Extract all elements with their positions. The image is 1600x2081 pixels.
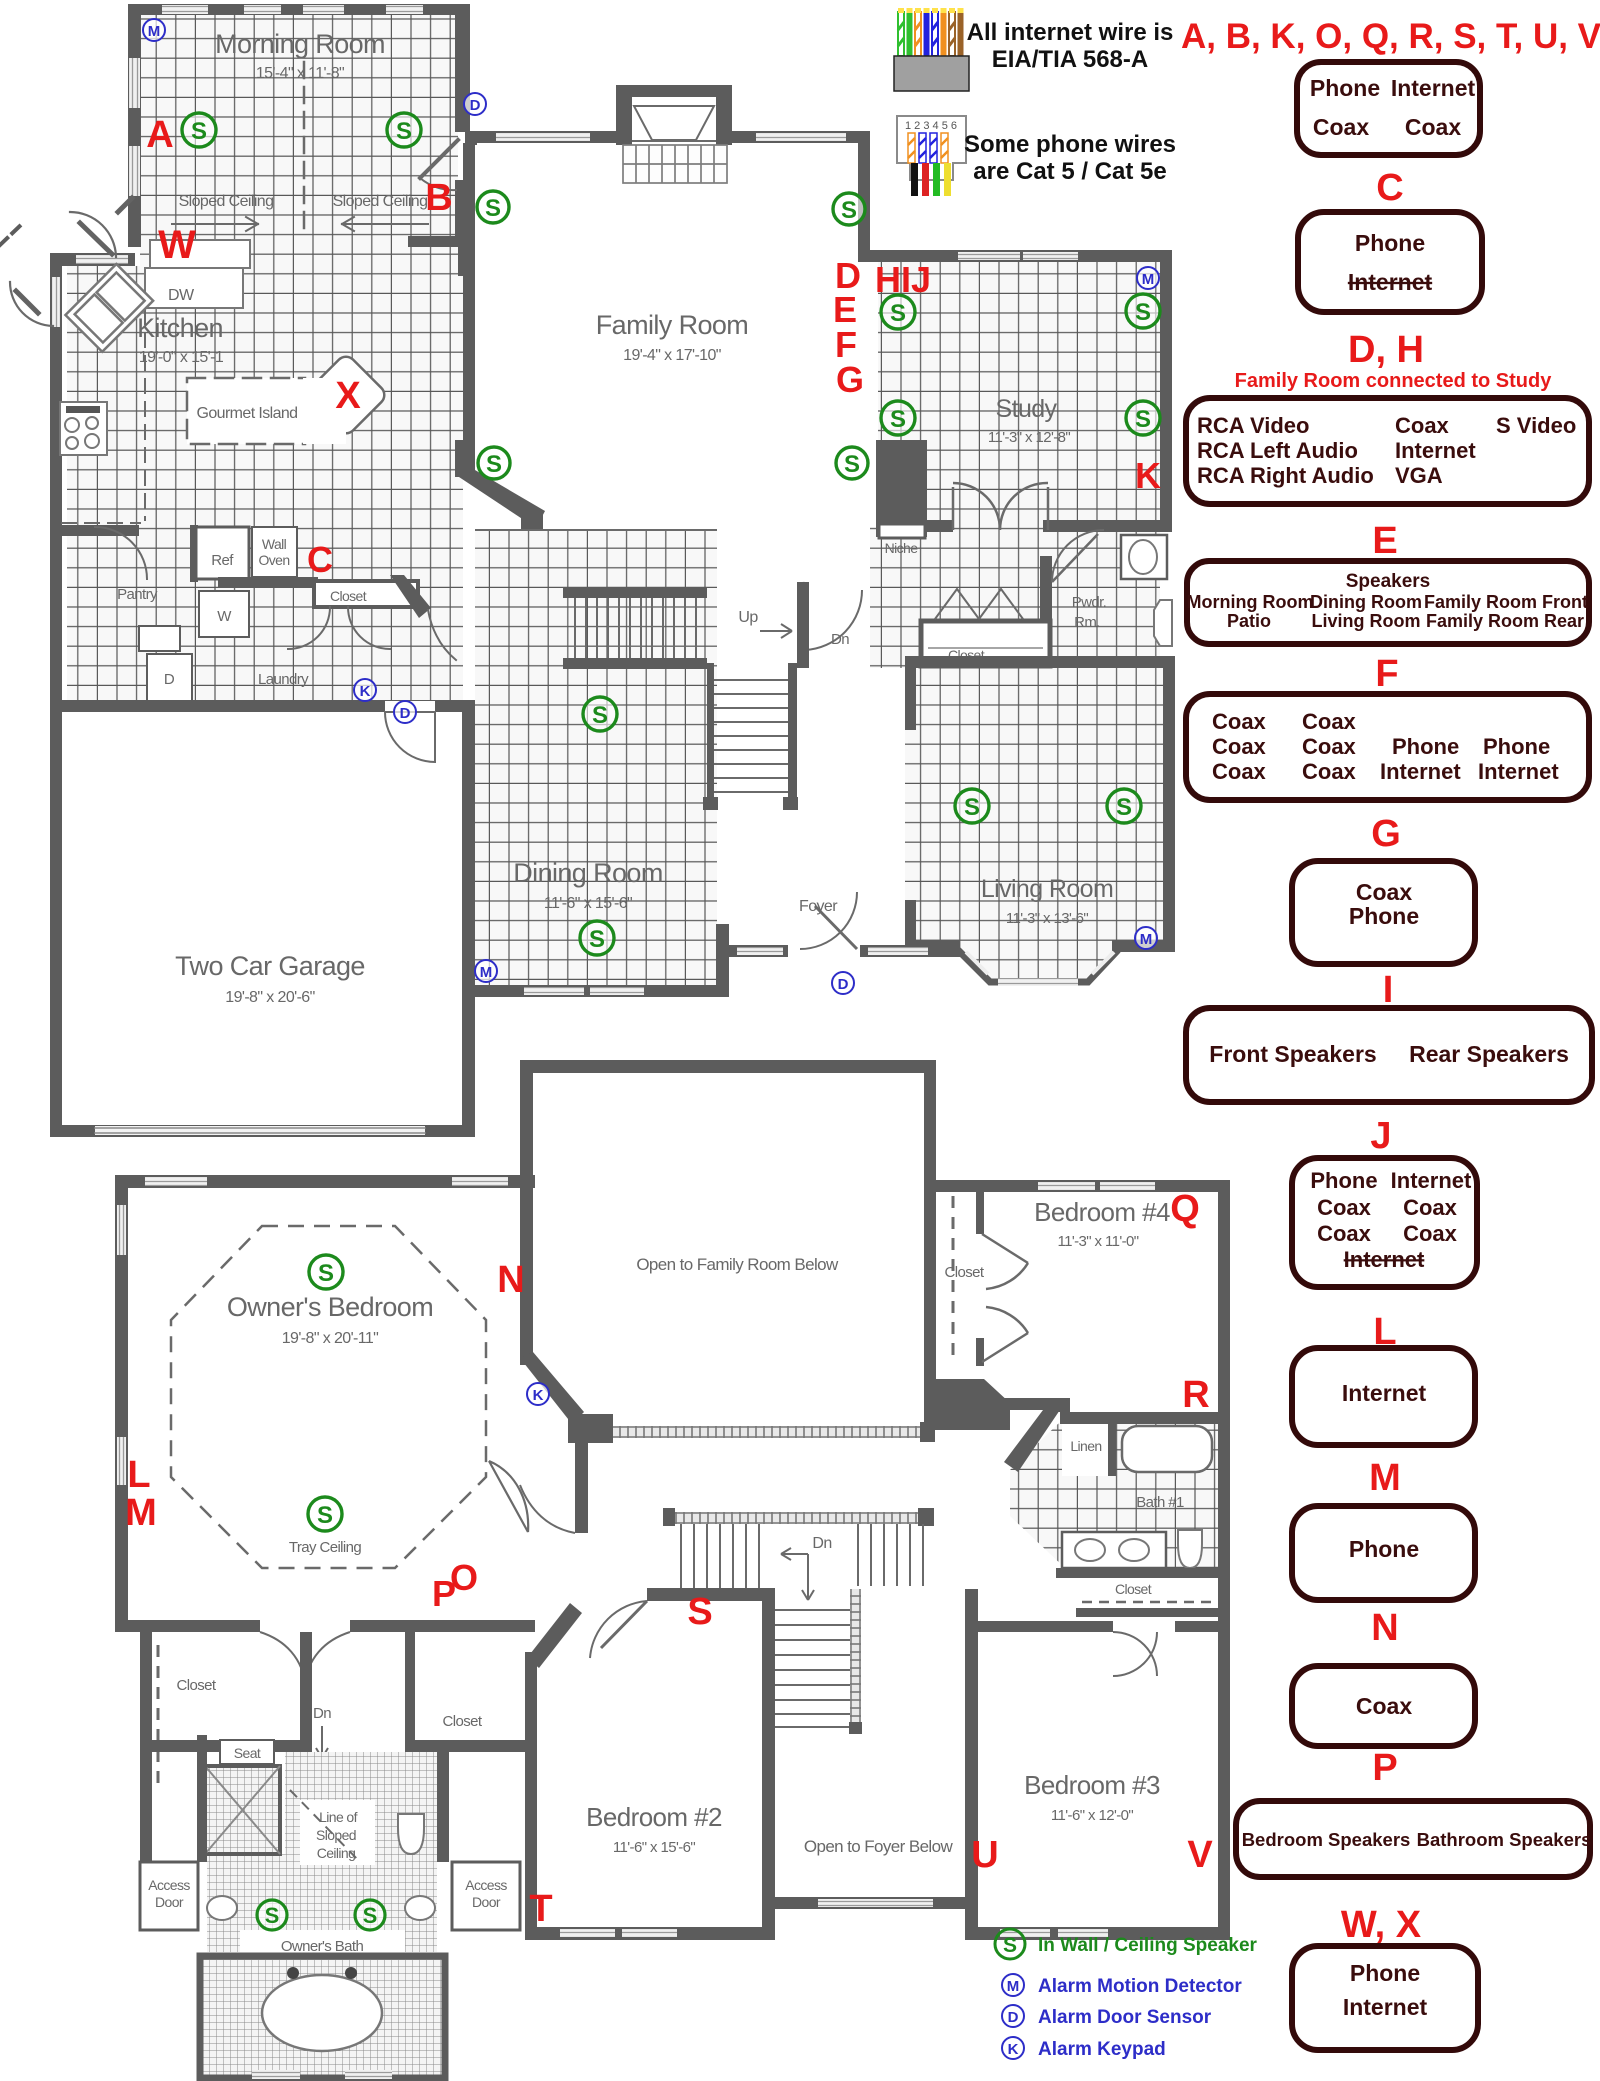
svg-text:S: S xyxy=(191,118,207,145)
svg-text:Phone: Phone xyxy=(1349,903,1419,929)
svg-text:19'-8" x 20'-11": 19'-8" x 20'-11" xyxy=(282,1330,379,1347)
svg-text:Dining Room: Dining Room xyxy=(513,858,662,888)
svg-text:Tray Ceiling: Tray Ceiling xyxy=(289,1539,362,1556)
svg-text:Ref: Ref xyxy=(211,552,234,569)
svg-text:Coax: Coax xyxy=(1313,114,1369,140)
svg-text:Rear Speakers: Rear Speakers xyxy=(1409,1041,1569,1067)
svg-text:M: M xyxy=(148,23,161,40)
svg-text:Pantry: Pantry xyxy=(117,586,158,603)
svg-text:Alarm Motion Detector: Alarm Motion Detector xyxy=(1038,1976,1242,1997)
svg-text:M: M xyxy=(1140,931,1153,948)
svg-text:Phone: Phone xyxy=(1310,75,1380,101)
svg-text:Coax: Coax xyxy=(1302,709,1357,734)
svg-text:S: S xyxy=(1135,406,1151,433)
svg-text:Phone: Phone xyxy=(1350,1960,1420,1986)
svg-text:S: S xyxy=(841,197,857,224)
svg-text:Coax: Coax xyxy=(1317,1221,1372,1246)
svg-text:Coax: Coax xyxy=(1302,759,1357,784)
svg-text:Patio: Patio xyxy=(1227,611,1271,631)
svg-text:EIA/TIA 568-A: EIA/TIA 568-A xyxy=(992,46,1148,73)
svg-text:U: U xyxy=(971,1834,998,1876)
svg-text:D: D xyxy=(470,97,481,114)
svg-text:Internet: Internet xyxy=(1478,759,1559,784)
svg-text:Internet: Internet xyxy=(1342,1380,1427,1406)
svg-text:1 2 3 4 5 6: 1 2 3 4 5 6 xyxy=(905,120,957,132)
svg-text:Kitchen: Kitchen xyxy=(137,313,223,343)
svg-text:K: K xyxy=(533,1387,544,1404)
svg-text:W: W xyxy=(217,608,232,625)
svg-text:Internet: Internet xyxy=(1395,438,1476,463)
svg-text:Alarm Keypad: Alarm Keypad xyxy=(1038,2039,1166,2060)
svg-text:Internet: Internet xyxy=(1380,759,1461,784)
svg-text:S: S xyxy=(890,300,906,327)
svg-text:Dn: Dn xyxy=(831,631,849,648)
svg-text:Pwdr.: Pwdr. xyxy=(1072,594,1107,611)
svg-text:S: S xyxy=(592,702,608,729)
svg-text:C: C xyxy=(307,539,333,580)
svg-text:Ceiling: Ceiling xyxy=(317,1845,356,1861)
svg-text:S: S xyxy=(890,406,906,433)
svg-text:19'-0" x 15'-1: 19'-0" x 15'-1 xyxy=(139,349,224,366)
svg-text:Linen: Linen xyxy=(1070,1438,1101,1454)
svg-text:M: M xyxy=(1369,1457,1401,1499)
svg-text:Door: Door xyxy=(155,1894,184,1910)
svg-text:S: S xyxy=(1116,794,1132,821)
svg-text:Bedroom #3: Bedroom #3 xyxy=(1024,1770,1160,1800)
svg-text:R: R xyxy=(1182,1374,1209,1416)
svg-text:S: S xyxy=(317,1502,333,1529)
svg-text:Bathroom Speakers: Bathroom Speakers xyxy=(1417,1829,1592,1850)
svg-text:Oven: Oven xyxy=(258,552,289,568)
svg-text:Morning Room: Morning Room xyxy=(1187,592,1314,612)
svg-text:15'-4" x 11'-8": 15'-4" x 11'-8" xyxy=(256,65,344,82)
svg-text:All internet wire is: All internet wire is xyxy=(967,19,1174,46)
svg-text:S: S xyxy=(1003,1934,1017,1957)
svg-text:Morning Room: Morning Room xyxy=(215,29,385,59)
svg-text:Closet: Closet xyxy=(177,1677,217,1694)
svg-text:11'-3" x 11'-0": 11'-3" x 11'-0" xyxy=(1057,1233,1138,1250)
svg-text:Coax: Coax xyxy=(1302,734,1357,759)
svg-text:DW: DW xyxy=(168,287,195,304)
svg-text:Phone: Phone xyxy=(1349,1536,1419,1562)
svg-text:19'-8" x 20'-6": 19'-8" x 20'-6" xyxy=(225,989,314,1006)
svg-text:M: M xyxy=(480,964,493,981)
svg-text:11'-6" x 12'-0": 11'-6" x 12'-0" xyxy=(1051,1807,1133,1824)
svg-text:In Wall / Ceiling Speaker: In Wall / Ceiling Speaker xyxy=(1038,1935,1258,1956)
svg-text:G: G xyxy=(1371,813,1401,855)
svg-text:Rm.: Rm. xyxy=(1074,614,1100,631)
svg-text:Alarm Door Sensor: Alarm Door Sensor xyxy=(1038,2007,1212,2028)
svg-text:Closet: Closet xyxy=(1115,1581,1152,1597)
svg-text:Sloped Ceiling: Sloped Ceiling xyxy=(333,193,428,210)
svg-text:S: S xyxy=(363,1903,378,1928)
svg-text:Wall: Wall xyxy=(262,536,287,552)
svg-text:Niche: Niche xyxy=(885,540,919,556)
svg-text:W, X: W, X xyxy=(1341,1904,1422,1946)
svg-text:D: D xyxy=(400,705,411,722)
svg-text:S: S xyxy=(486,451,502,478)
svg-text:Front Speakers: Front Speakers xyxy=(1209,1041,1376,1067)
svg-text:Closet: Closet xyxy=(945,1264,985,1281)
svg-text:Phone: Phone xyxy=(1392,734,1459,759)
svg-text:Living Room: Living Room xyxy=(981,875,1113,903)
svg-text:S: S xyxy=(687,1591,712,1633)
svg-text:Phone: Phone xyxy=(1310,1168,1377,1193)
svg-text:Some phone wires: Some phone wires xyxy=(964,131,1176,158)
svg-text:M: M xyxy=(1142,271,1155,288)
svg-text:19'-4" x 17'-10": 19'-4" x 17'-10" xyxy=(623,347,721,364)
svg-text:S: S xyxy=(318,1260,334,1287)
svg-text:Open to Foyer Below: Open to Foyer Below xyxy=(804,1837,954,1856)
svg-text:K: K xyxy=(1135,455,1161,496)
svg-text:Phone: Phone xyxy=(1483,734,1550,759)
svg-text:11'-6" x 15'-6": 11'-6" x 15'-6" xyxy=(613,1839,695,1856)
svg-text:Coax: Coax xyxy=(1403,1221,1458,1246)
svg-text:S: S xyxy=(485,195,501,222)
svg-text:Family Room connected to Study: Family Room connected to Study xyxy=(1235,370,1553,392)
svg-text:Closet: Closet xyxy=(443,1713,483,1730)
svg-text:Closet: Closet xyxy=(330,588,367,604)
svg-text:Coax: Coax xyxy=(1403,1195,1458,1220)
svg-text:11'-3" x 12'-8": 11'-3" x 12'-8" xyxy=(988,429,1070,446)
svg-text:Seat: Seat xyxy=(234,1745,261,1761)
svg-text:S: S xyxy=(1135,299,1151,326)
svg-text:Coax: Coax xyxy=(1212,734,1267,759)
svg-text:S: S xyxy=(265,1903,280,1928)
svg-text:Coax: Coax xyxy=(1212,759,1267,784)
svg-text:Family Room: Family Room xyxy=(596,310,748,340)
svg-text:Coax: Coax xyxy=(1405,114,1461,140)
svg-text:G: G xyxy=(836,359,864,400)
svg-text:11'-3" x 13'-6": 11'-3" x 13'-6" xyxy=(1006,910,1088,927)
svg-text:Coax: Coax xyxy=(1356,879,1412,905)
svg-text:Owner's Bath: Owner's Bath xyxy=(281,1938,364,1955)
svg-text:Sloped: Sloped xyxy=(316,1827,356,1843)
svg-text:Speakers: Speakers xyxy=(1346,571,1431,592)
svg-text:Gourmet Island: Gourmet Island xyxy=(197,405,298,422)
svg-text:Bedroom #2: Bedroom #2 xyxy=(586,1802,722,1832)
svg-text:F: F xyxy=(1375,653,1398,695)
svg-text:D: D xyxy=(164,671,175,688)
svg-text:M: M xyxy=(125,1492,157,1534)
svg-text:Study: Study xyxy=(996,395,1058,423)
svg-text:Bedroom Speakers: Bedroom Speakers xyxy=(1242,1829,1411,1850)
svg-text:Laundry: Laundry xyxy=(258,671,309,688)
svg-text:I: I xyxy=(1383,969,1394,1011)
svg-text:K: K xyxy=(1008,2041,1019,2058)
svg-text:D, H: D, H xyxy=(1348,329,1424,371)
svg-text:Access: Access xyxy=(148,1877,190,1893)
svg-text:Up: Up xyxy=(738,609,758,626)
svg-text:Door: Door xyxy=(472,1894,501,1910)
svg-text:Family Room Rear: Family Room Rear xyxy=(1426,611,1584,631)
svg-text:M: M xyxy=(1007,1978,1020,1995)
svg-text:K: K xyxy=(360,683,371,700)
svg-text:X: X xyxy=(335,375,361,417)
svg-text:D: D xyxy=(838,976,849,993)
svg-text:Coax: Coax xyxy=(1395,413,1450,438)
svg-text:Dn: Dn xyxy=(812,1535,831,1552)
svg-text:Internet: Internet xyxy=(1344,1247,1425,1272)
svg-text:are Cat 5 / Cat 5e: are Cat 5 / Cat 5e xyxy=(973,158,1166,185)
svg-text:Coax: Coax xyxy=(1317,1195,1372,1220)
svg-text:VGA: VGA xyxy=(1395,463,1443,488)
svg-text:Internet: Internet xyxy=(1391,75,1476,101)
svg-text:RCA Video: RCA Video xyxy=(1197,413,1309,438)
svg-text:RCA Left Audio: RCA Left Audio xyxy=(1197,438,1358,463)
svg-text:C: C xyxy=(1376,167,1403,209)
svg-text:Phone: Phone xyxy=(1355,230,1425,256)
svg-text:Dining Room: Dining Room xyxy=(1310,592,1422,612)
svg-text:Q: Q xyxy=(1170,1188,1200,1230)
svg-text:A: A xyxy=(146,114,173,156)
svg-text:Bedroom #4: Bedroom #4 xyxy=(1034,1197,1170,1227)
svg-text:D: D xyxy=(1008,2009,1019,2026)
svg-text:Coax: Coax xyxy=(1212,709,1267,734)
svg-text:Owner's Bedroom: Owner's Bedroom xyxy=(227,1292,433,1322)
svg-text:S Video: S Video xyxy=(1496,413,1576,438)
svg-text:E: E xyxy=(1372,520,1397,562)
svg-text:S: S xyxy=(396,118,412,145)
svg-text:11'-6" x 15'-6": 11'-6" x 15'-6" xyxy=(544,895,632,912)
svg-text:V: V xyxy=(1187,1834,1213,1876)
svg-text:Family Room Front: Family Room Front xyxy=(1424,592,1588,612)
svg-text:N: N xyxy=(1371,1607,1398,1649)
svg-text:Internet: Internet xyxy=(1348,269,1433,295)
svg-text:S: S xyxy=(964,794,980,821)
svg-text:Dn: Dn xyxy=(313,1705,331,1722)
svg-text:HIJ: HIJ xyxy=(875,259,931,300)
svg-text:Bath #1: Bath #1 xyxy=(1136,1494,1184,1511)
svg-text:Foyer: Foyer xyxy=(799,898,838,915)
svg-text:L: L xyxy=(127,1454,150,1496)
svg-text:Line of: Line of xyxy=(319,1809,358,1825)
svg-text:P: P xyxy=(432,1573,456,1614)
svg-text:Sloped Ceiling: Sloped Ceiling xyxy=(179,193,274,210)
svg-text:Two Car Garage: Two Car Garage xyxy=(175,951,365,981)
svg-text:A, B, K, O, Q, R, S, T, U, V: A, B, K, O, Q, R, S, T, U, V xyxy=(1181,17,1600,56)
svg-text:Open to Family Room Below: Open to Family Room Below xyxy=(636,1255,839,1274)
svg-text:P: P xyxy=(1372,1747,1397,1789)
svg-text:RCA Right Audio: RCA Right Audio xyxy=(1197,463,1374,488)
svg-text:S: S xyxy=(589,926,605,953)
svg-text:Internet: Internet xyxy=(1391,1168,1472,1193)
svg-text:N: N xyxy=(497,1259,524,1301)
svg-text:Internet: Internet xyxy=(1343,1994,1428,2020)
svg-text:Access: Access xyxy=(465,1877,507,1893)
svg-text:Living Room: Living Room xyxy=(1312,611,1421,631)
svg-text:W: W xyxy=(158,223,196,267)
svg-text:T: T xyxy=(529,1888,552,1930)
svg-text:Coax: Coax xyxy=(1356,1693,1412,1719)
svg-text:J: J xyxy=(1370,1115,1391,1157)
svg-text:B: B xyxy=(425,177,452,219)
svg-text:S: S xyxy=(844,451,860,478)
